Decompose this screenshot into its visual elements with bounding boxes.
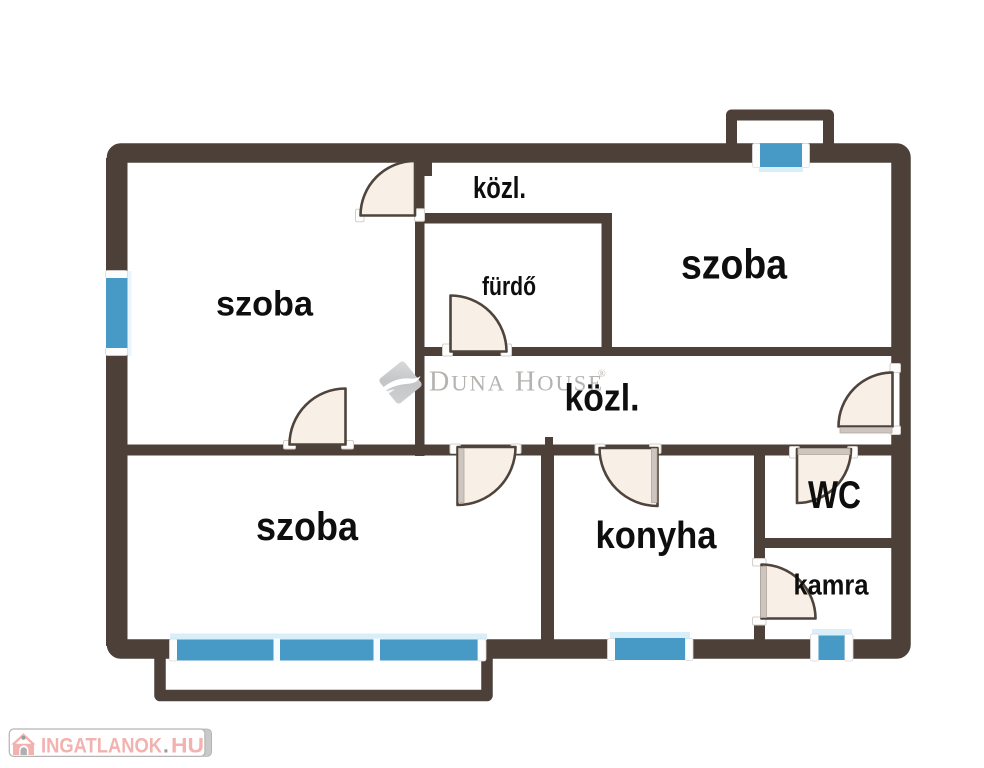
svg-text:.: . (163, 735, 169, 758)
svg-text:HU: HU (171, 735, 204, 758)
svg-text:fürdő: fürdő (482, 273, 536, 301)
svg-text:közl.: közl. (473, 170, 526, 205)
svg-text:kamra: kamra (794, 570, 870, 602)
svg-text:WC: WC (808, 474, 861, 517)
svg-text:INGATLANOK: INGATLANOK (41, 735, 162, 758)
svg-text:szoba: szoba (216, 284, 313, 324)
svg-text:szoba: szoba (681, 241, 788, 288)
svg-text:közl.: közl. (565, 378, 640, 420)
svg-text:konyha: konyha (596, 515, 718, 557)
svg-text:szoba: szoba (256, 505, 359, 549)
